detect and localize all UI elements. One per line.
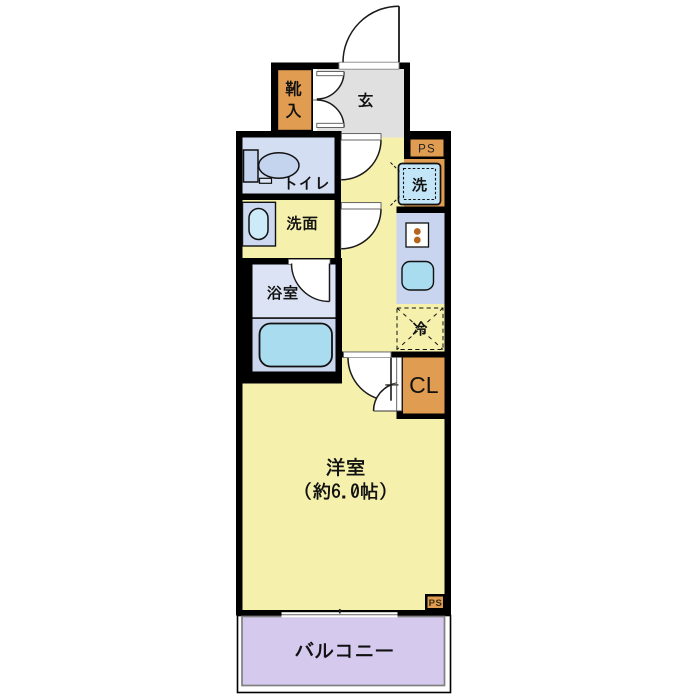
svg-text:PS: PS (418, 144, 436, 156)
svg-text:CL: CL (409, 372, 439, 398)
svg-text:PS: PS (429, 598, 443, 609)
